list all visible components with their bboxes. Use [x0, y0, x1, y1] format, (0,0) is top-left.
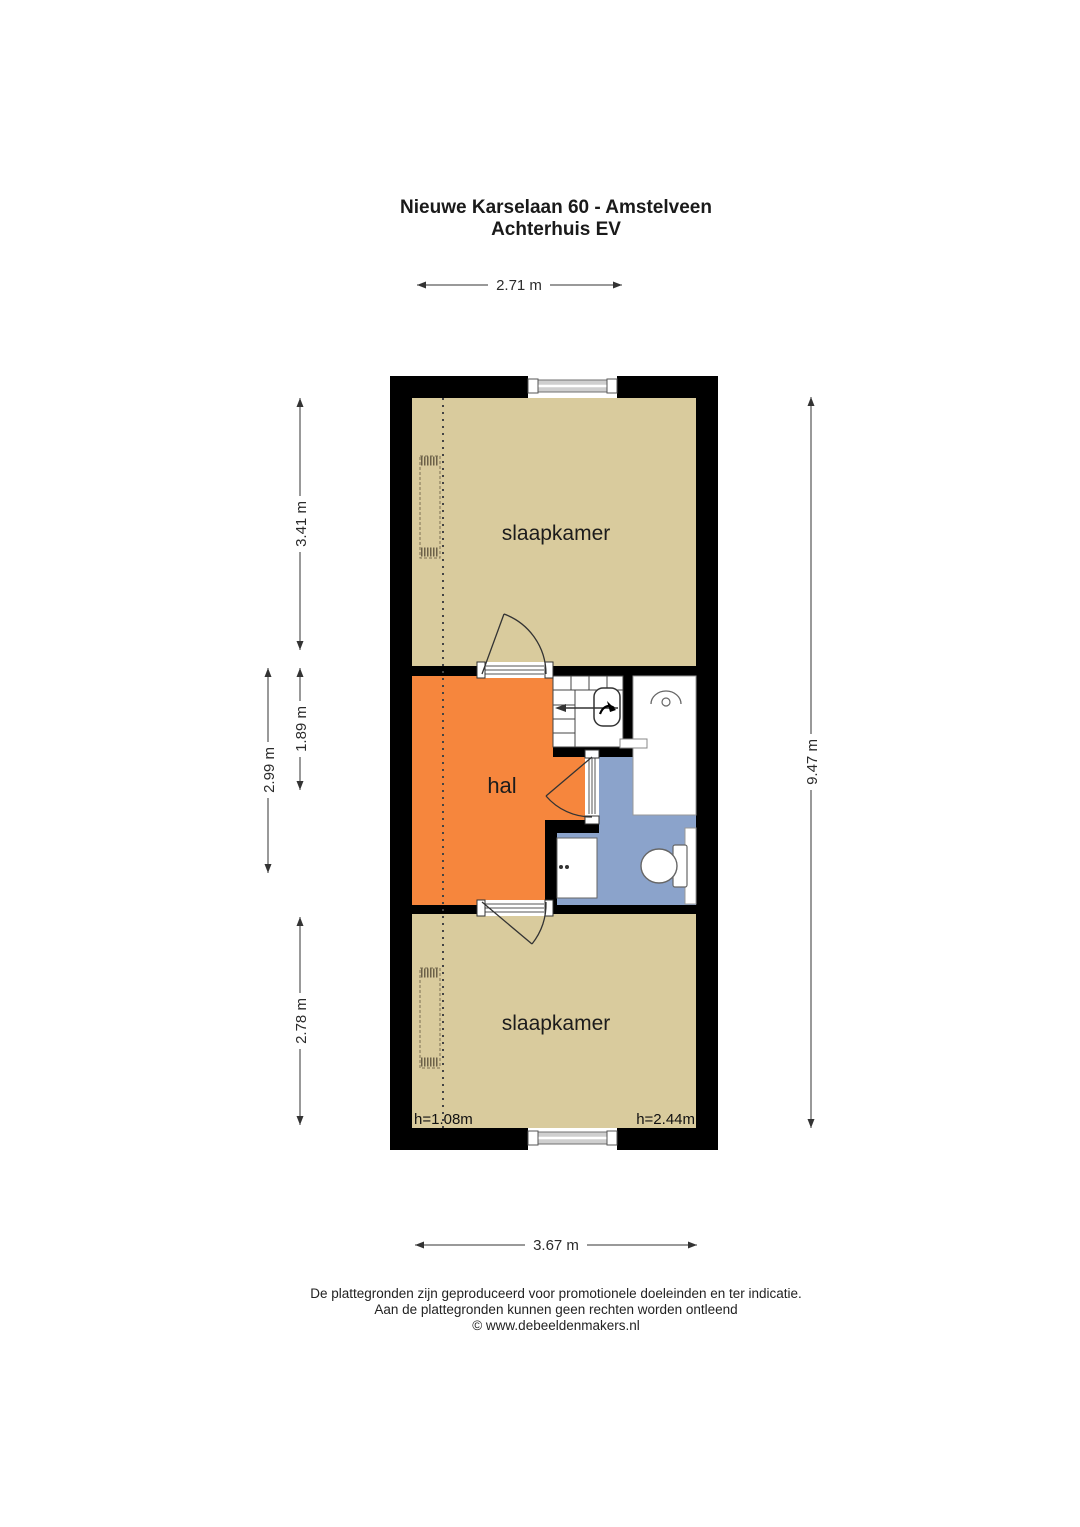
svg-text:9.47 m: 9.47 m	[804, 739, 821, 785]
window-bottom	[528, 1128, 617, 1150]
dim-middle-depth: 2.99 m	[257, 668, 279, 873]
room-label-hall: hal	[487, 773, 516, 798]
floorplan: slaapkamer hal slaapkamer h=1.08m h=2.44…	[390, 376, 718, 1150]
dim-bedroom-top-depth: 3.41 m	[289, 398, 311, 650]
page-subtitle: Achterhuis EV	[491, 219, 621, 240]
footer-disclaimer-line1: De plattegronden zijn geproduceerd voor …	[310, 1286, 802, 1301]
svg-text:2.78 m: 2.78 m	[293, 998, 310, 1044]
floorplan-page: Nieuwe Karselaan 60 - Amstelveen Achterh…	[0, 0, 1080, 1527]
bathtub-shelf	[620, 739, 647, 748]
svg-text:3.41 m: 3.41 m	[293, 501, 310, 547]
dim-top-width: 2.71 m	[417, 275, 622, 295]
page-title: Nieuwe Karselaan 60 - Amstelveen	[400, 197, 712, 218]
ceiling-height-right: h=2.44m	[636, 1111, 695, 1128]
dim-hall-depth: 1.89 m	[289, 668, 311, 790]
svg-text:1.89 m: 1.89 m	[293, 706, 310, 752]
footer-copyright: © www.debeeldenmakers.nl	[472, 1318, 640, 1333]
ceiling-height-left: h=1.08m	[414, 1111, 473, 1128]
footer-disclaimer-line2: Aan de plattegronden kunnen geen rechten…	[374, 1302, 737, 1317]
washbasin-tap-icon	[565, 865, 569, 869]
washbasin	[557, 838, 597, 898]
svg-text:2.99 m: 2.99 m	[261, 747, 278, 793]
dim-bottom-width: 3.67 m	[415, 1235, 697, 1255]
svg-text:2.71 m: 2.71 m	[496, 277, 542, 294]
dim-bedroom-bottom-depth: 2.78 m	[289, 917, 311, 1125]
window-top	[528, 376, 617, 398]
washbasin-tap-icon	[559, 865, 563, 869]
room-label-bedroom-top: slaapkamer	[502, 522, 611, 545]
room-label-bedroom-bottom: slaapkamer	[502, 1012, 611, 1035]
dim-total-depth: 9.47 m	[800, 397, 822, 1128]
svg-text:3.67 m: 3.67 m	[533, 1237, 579, 1254]
stairs	[553, 676, 623, 747]
